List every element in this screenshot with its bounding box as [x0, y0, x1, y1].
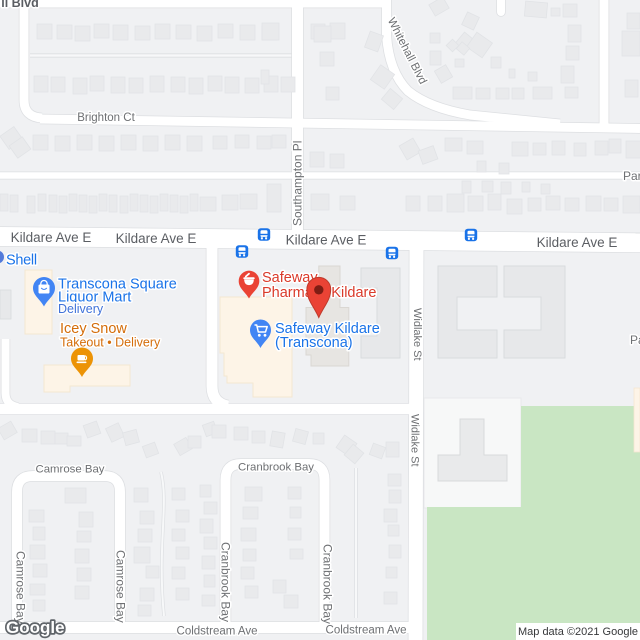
svg-text:Brighton Ct: Brighton Ct [77, 112, 135, 124]
svg-text:Kildare Ave E: Kildare Ave E [11, 230, 92, 245]
svg-text:Kildare Ave E: Kildare Ave E [116, 231, 197, 246]
svg-text:Map data ©2021 Google: Map data ©2021 Google [518, 626, 638, 638]
svg-text:Southampton Pl: Southampton Pl [291, 141, 305, 226]
svg-text:Coldstream Ave: Coldstream Ave [326, 625, 407, 637]
svg-text:Coldstream Ave: Coldstream Ave [177, 626, 258, 638]
svg-text:Widlake St: Widlake St [411, 308, 423, 361]
svg-text:Takeout • Delivery: Takeout • Delivery [60, 336, 161, 350]
svg-text:Delivery: Delivery [58, 302, 104, 316]
svg-text:Par: Par [623, 169, 640, 183]
svg-text:Camrose Bay: Camrose Bay [14, 551, 28, 624]
svg-text:Kildare Ave E: Kildare Ave E [537, 235, 618, 250]
svg-text:Cranbrook Bay: Cranbrook Bay [321, 544, 335, 624]
svg-text:Shell: Shell [6, 253, 37, 269]
svg-text:Google: Google [6, 618, 65, 637]
svg-text:Cranbrook Bay: Cranbrook Bay [219, 542, 233, 622]
svg-text:(Transcona): (Transcona) [275, 335, 353, 351]
svg-text:Camrose Bay: Camrose Bay [114, 550, 128, 623]
svg-text:ll Blvd: ll Blvd [1, 0, 39, 10]
svg-text:Pa: Pa [630, 333, 640, 347]
svg-text:Widlake St: Widlake St [409, 414, 421, 467]
svg-text:Cranbrook Bay: Cranbrook Bay [238, 462, 314, 474]
svg-text:Camrose Bay: Camrose Bay [35, 464, 104, 476]
svg-text:Kildare Ave E: Kildare Ave E [286, 233, 367, 248]
